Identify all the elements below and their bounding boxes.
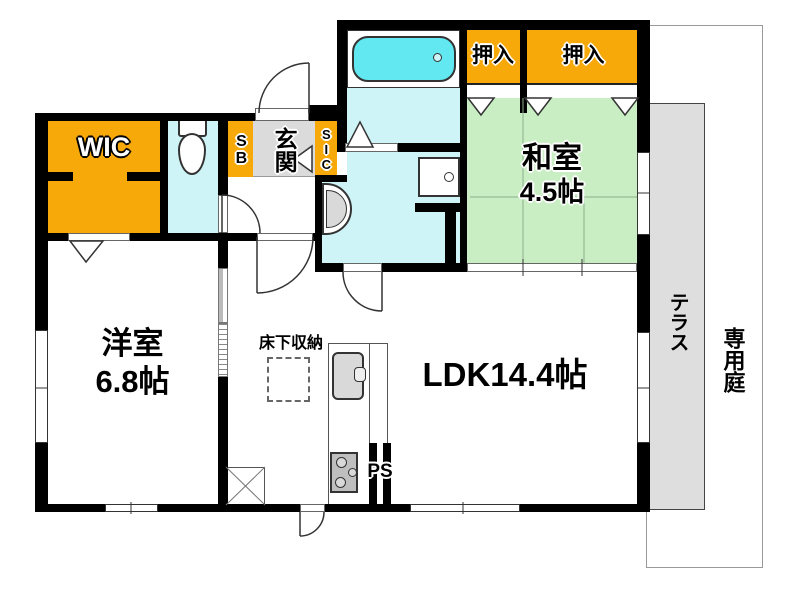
wall bbox=[315, 177, 322, 272]
wall bbox=[48, 172, 73, 181]
wall bbox=[35, 233, 70, 241]
wic-label: WIC bbox=[48, 133, 160, 161]
bath-door-opening bbox=[345, 143, 398, 152]
wall bbox=[218, 113, 228, 195]
wall bbox=[520, 504, 650, 512]
wall bbox=[127, 172, 160, 181]
toilet-door-opening bbox=[218, 195, 228, 233]
oshiire-left-label: 押入 bbox=[463, 45, 523, 67]
floor-storage-label: 床下収納 bbox=[248, 336, 334, 353]
wall bbox=[637, 20, 650, 152]
oshiire-right-label: 押入 bbox=[527, 45, 640, 67]
bathtub-drain bbox=[433, 53, 442, 62]
youshitsu-name-label: 洋室 bbox=[40, 328, 225, 361]
kitchen-door-arc bbox=[300, 512, 324, 536]
sic-label: SIC bbox=[315, 121, 337, 177]
front-door-arc bbox=[259, 63, 309, 113]
washitsu-sliding-track bbox=[467, 263, 637, 272]
wall bbox=[382, 263, 467, 272]
wall bbox=[322, 263, 343, 272]
kitchen-counter-divider bbox=[369, 343, 370, 445]
pocket-door-leaf-shade bbox=[219, 269, 223, 322]
wic-door-opening bbox=[68, 233, 130, 241]
shaft-box bbox=[226, 467, 265, 505]
kitchen-door-opening bbox=[300, 504, 325, 512]
wall bbox=[158, 504, 300, 512]
closet-door-strip bbox=[467, 85, 640, 98]
floor-storage-box bbox=[267, 357, 310, 402]
window bbox=[637, 152, 650, 235]
stove-burner bbox=[336, 457, 347, 468]
wall bbox=[324, 504, 410, 512]
kitchen-faucet bbox=[354, 367, 366, 382]
wall bbox=[637, 443, 650, 512]
wall bbox=[35, 504, 105, 512]
hall-door-arc bbox=[257, 237, 313, 293]
terrace-label: テラス bbox=[648, 262, 705, 382]
wall bbox=[35, 443, 48, 512]
wall bbox=[160, 113, 168, 237]
washroom-door-arc bbox=[343, 272, 382, 311]
stove-burner bbox=[335, 477, 346, 488]
wall bbox=[35, 113, 48, 330]
stove-burner bbox=[348, 468, 357, 477]
hall-door-opening bbox=[257, 233, 313, 241]
ps-label: PS bbox=[360, 462, 400, 482]
youshitsu-size-label: 6.8帖 bbox=[40, 366, 225, 399]
floorplan: WIC 押入 押入 和室 4.5帖 洋室 6.8帖 LDK14.4帖 床下収納 … bbox=[0, 0, 800, 596]
wic-door-marker bbox=[70, 241, 103, 262]
front-door-opening bbox=[255, 108, 309, 121]
wall bbox=[337, 20, 650, 30]
washitsu-size-label: 4.5帖 bbox=[467, 178, 637, 206]
wall bbox=[397, 143, 460, 152]
sb-label: SB bbox=[228, 122, 253, 177]
washroom-door-opening bbox=[343, 263, 382, 272]
window bbox=[105, 504, 158, 512]
window bbox=[410, 504, 520, 512]
wall bbox=[520, 30, 527, 113]
wall bbox=[130, 233, 257, 241]
washitsu-name-label: 和室 bbox=[467, 143, 637, 175]
ldk-label: LDK14.4帖 bbox=[380, 358, 630, 393]
room-bathroom bbox=[347, 88, 460, 143]
genkan-label: 玄関 bbox=[253, 122, 315, 177]
wall bbox=[337, 20, 347, 152]
wall bbox=[445, 212, 456, 263]
washbasin-faucet bbox=[444, 172, 454, 182]
private-garden-label: 専用庭 bbox=[705, 295, 761, 425]
wall bbox=[415, 203, 460, 212]
